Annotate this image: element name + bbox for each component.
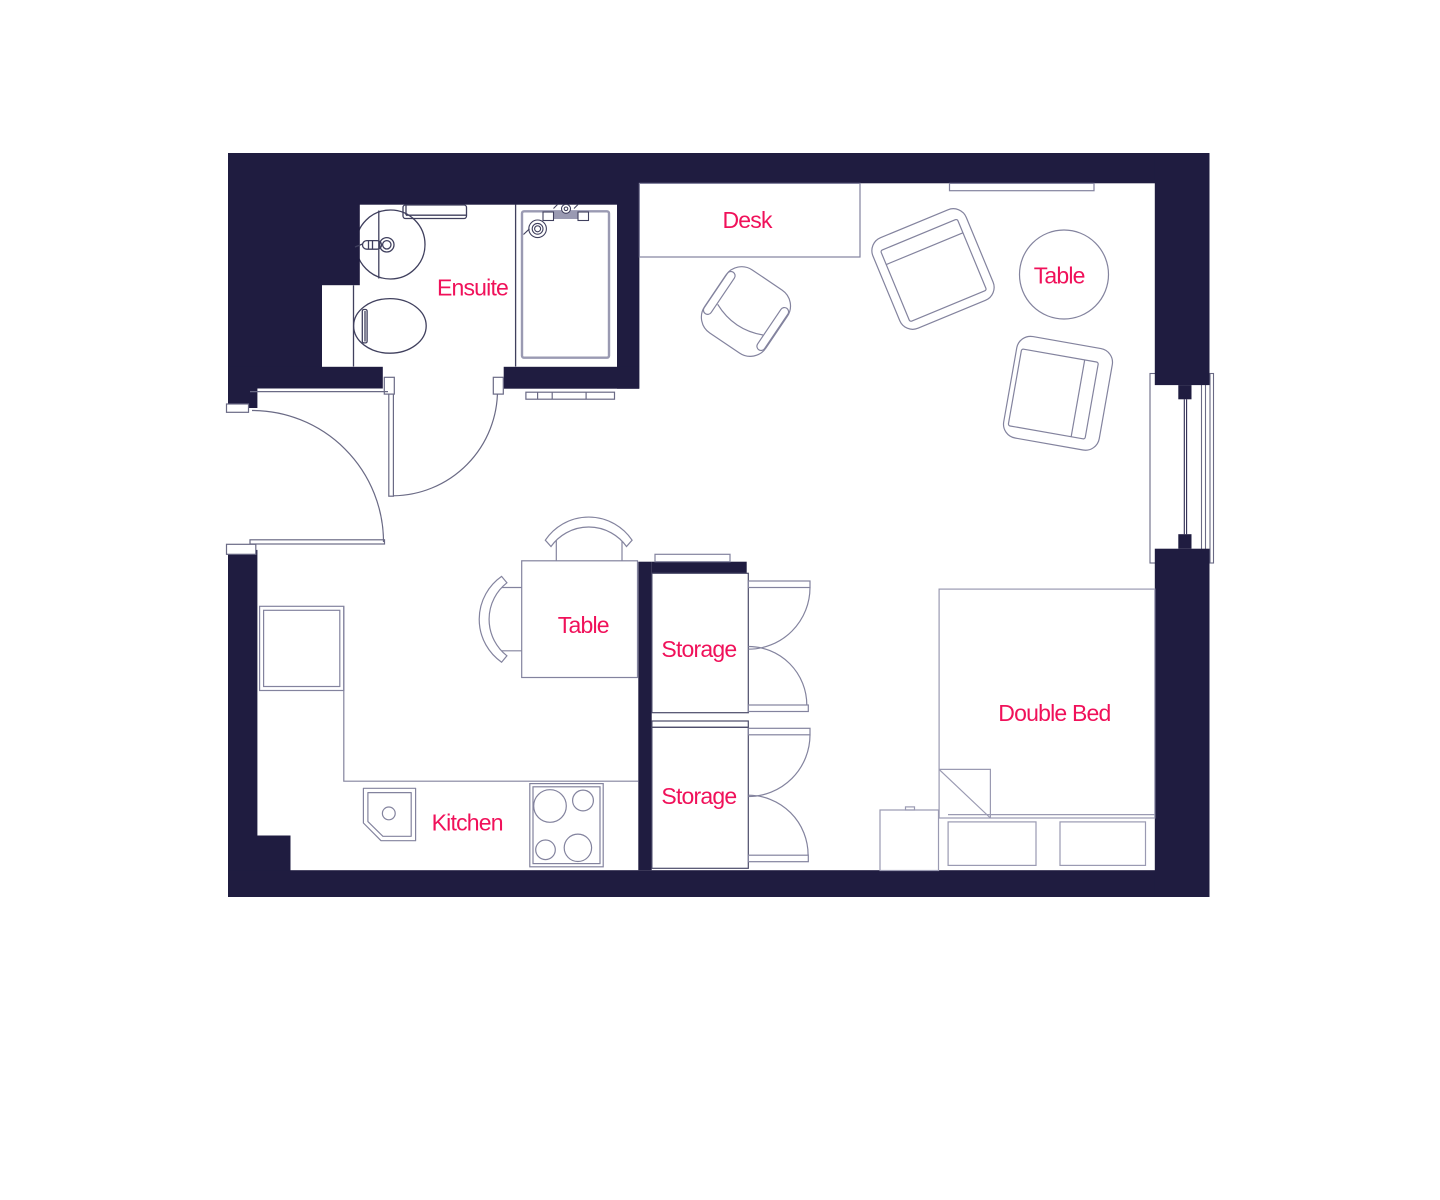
svg-text:Table: Table xyxy=(558,612,609,638)
svg-text:Storage: Storage xyxy=(661,636,736,662)
svg-text:Table: Table xyxy=(1034,263,1085,289)
svg-text:Ensuite: Ensuite xyxy=(437,274,508,300)
svg-text:Kitchen: Kitchen xyxy=(432,809,503,835)
svg-text:Desk: Desk xyxy=(722,207,773,233)
svg-text:Double Bed: Double Bed xyxy=(998,700,1110,726)
svg-text:Storage: Storage xyxy=(661,783,736,809)
